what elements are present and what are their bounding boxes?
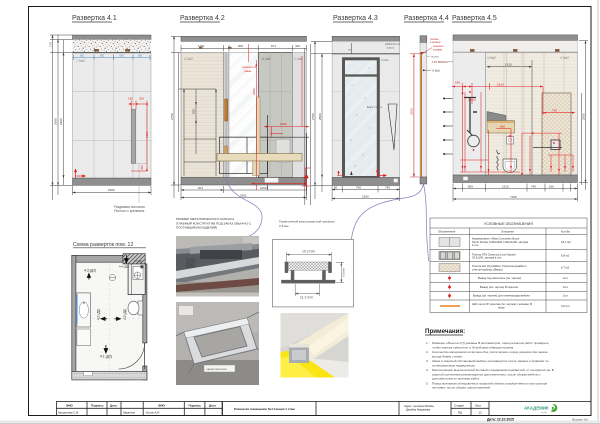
svg-text:2360: 2360: [108, 188, 115, 192]
svg-text:2750: 2750: [170, 113, 174, 120]
svg-text:Развертка 4.3: Развертка 4.3: [333, 15, 378, 22]
svg-text:600: 600: [120, 55, 125, 58]
svg-text:7195: 7195: [510, 195, 517, 199]
svg-text:1.4м2: 1.4м2: [294, 57, 303, 61]
svg-text:1510: 1510: [505, 63, 512, 67]
svg-text:900: 900: [238, 44, 243, 48]
svg-text:Заказчик: Заказчик: [123, 410, 136, 414]
svg-text:Формат А3: Формат А3: [572, 417, 588, 421]
svg-text:600: 600: [100, 55, 105, 58]
svg-text:4.5 (Д2): 4.5 (Д2): [123, 309, 127, 320]
svg-text:1510: 1510: [497, 83, 504, 87]
svg-text:560: 560: [138, 55, 143, 58]
svg-text:Герметичный влагозащитный проф: Герметичный влагозащитный профиль: [279, 220, 335, 224]
svg-text:Стадия: Стадия: [454, 404, 464, 408]
svg-text:610: 610: [549, 184, 554, 188]
svg-text:2500: 2500: [318, 113, 322, 120]
svg-text:Развертка 4.1: Развертка 4.1: [72, 15, 117, 22]
svg-text:450: 450: [140, 165, 144, 170]
svg-text:2250: 2250: [410, 108, 414, 115]
svg-text:на линии, после сборки, распол: на линии, после сборки, расположенной.: [432, 386, 491, 390]
svg-text:175: 175: [49, 42, 53, 47]
svg-text:нише: нише: [498, 307, 505, 310]
svg-text:Адрес: тропинка Москва,: Адрес: тропинка Москва,: [404, 404, 434, 408]
svg-text:90: 90: [334, 185, 338, 189]
svg-text:3.: 3.: [426, 359, 429, 363]
svg-text:Описание: Описание: [501, 230, 514, 234]
svg-text:ГЛУХ.: ГЛУХ.: [387, 46, 395, 50]
svg-text:Вывод (см. чертеж) для гигиена: Вывод (см. чертеж) для гигиенаграда мебе…: [473, 294, 530, 298]
svg-text:1шт: 1шт: [563, 294, 569, 298]
svg-text:дополнителем по монтажу работ.: дополнителем по монтажу работ.: [432, 377, 480, 381]
svg-text:140: 140: [455, 81, 460, 85]
svg-text:12: 12: [479, 411, 483, 415]
svg-text:6,7 м2: 6,7 м2: [561, 266, 570, 270]
svg-text:75: 75: [348, 48, 352, 52]
svg-text:Дата: Дата: [110, 404, 117, 408]
svg-text:601: 601: [198, 186, 203, 190]
svg-text:7.9м2: 7.9м2: [76, 59, 85, 63]
svg-text:каркас металлич.: каркас металлич.: [207, 368, 228, 371]
svg-text:0.6м2: 0.6м2: [432, 69, 440, 73]
svg-text:4.5м2: 4.5м2: [487, 56, 496, 60]
svg-text:1510: 1510: [502, 184, 509, 188]
svg-text:2680: 2680: [54, 118, 58, 125]
svg-text:3,5 м.п.: 3,5 м.п.: [561, 304, 571, 308]
svg-text:740: 740: [385, 185, 390, 189]
svg-text:560: 560: [500, 125, 505, 129]
svg-text:2750: 2750: [311, 113, 315, 120]
svg-text:4.2м2: 4.2м2: [184, 57, 193, 61]
svg-text:150: 150: [128, 97, 133, 101]
svg-text:РД: РД: [458, 411, 462, 415]
svg-text:Примечания:: Примечания:: [425, 328, 465, 335]
svg-text:740: 740: [552, 109, 557, 113]
svg-text:4.4 (Д2): 4.4 (Д2): [119, 265, 129, 269]
svg-text:чтобы монтаж смеситель и. В вы: чтобы монтаж смеситель и. В выбором обво…: [432, 345, 514, 349]
svg-text:2500: 2500: [59, 118, 63, 125]
svg-text:Котов А.И: Котов А.И: [146, 410, 159, 414]
svg-text:4.1 (Д2): 4.1 (Д2): [100, 355, 112, 359]
svg-text:420: 420: [295, 44, 300, 48]
svg-text:4.4 (Д): 4.4 (Д): [134, 259, 142, 263]
svg-text:Дата: Дата: [209, 404, 216, 408]
svg-text:Развертка 4.4: Развертка 4.4: [404, 15, 449, 22]
svg-text:2.: 2.: [426, 350, 429, 354]
svg-text:LED-лента IP, скрытая (см. чер: LED-лента IP, скрытая (см. чертеж) с ниш…: [472, 302, 532, 306]
svg-text:1.: 1.: [426, 341, 429, 345]
svg-text:16,1 м2: 16,1 м2: [561, 240, 571, 244]
svg-text:потенциальным подрядчиком.: потенциальным подрядчиком.: [432, 363, 476, 367]
svg-text:4.2 (Д2): 4.2 (Д2): [97, 309, 101, 320]
svg-text:871: 871: [271, 44, 276, 48]
svg-text:6,8 м2: 6,8 м2: [561, 254, 570, 258]
svg-text:в размер: в размер: [430, 41, 441, 44]
svg-text:11.2 mm: 11.2 mm: [300, 296, 313, 300]
svg-text:строй: строй: [541, 411, 548, 414]
svg-text:855: 855: [468, 184, 473, 188]
svg-text:6.5mm: 6.5mm: [342, 267, 346, 277]
svg-text:Бокс стекл.: Бокс стекл.: [367, 105, 382, 109]
svg-text:4.5м2: 4.5м2: [560, 56, 569, 60]
svg-text:полка: полка: [431, 55, 439, 59]
svg-text:Дерябка Академика: Дерябка Академика: [406, 408, 431, 412]
svg-text:Развертка помещения №4 Секция: Развертка помещения №4 Секция 1 этаж: [234, 407, 296, 411]
svg-text:1шт: 1шт: [563, 276, 569, 280]
svg-text:3361: 3361: [240, 193, 247, 197]
svg-text:1150: 1150: [145, 131, 149, 138]
svg-text:Развертка 4.2: Развертка 4.2: [180, 15, 225, 22]
svg-text:33,3х100, затирка в тон: 33,3х100, затирка в тон: [472, 256, 502, 260]
svg-text:ФИО: ФИО: [66, 404, 74, 408]
svg-text:Подпись: Подпись: [189, 404, 202, 408]
svg-text:4.: 4.: [426, 368, 429, 372]
svg-text:740: 740: [531, 184, 536, 188]
svg-text:1560: 1560: [362, 194, 369, 198]
svg-text:Развертка 4.5: Развертка 4.5: [452, 15, 497, 22]
svg-text:АКАДЕМИК: АКАДЕМИК: [524, 406, 549, 411]
svg-text:1400: 1400: [280, 122, 287, 126]
svg-text:Вывод под смеситель (см. черте: Вывод под смеситель (см. чертеж): [478, 276, 521, 280]
svg-text:в тон: в тон: [472, 244, 479, 247]
svg-text:в раме: в раме: [433, 48, 443, 52]
svg-text:1шт: 1шт: [563, 285, 569, 289]
svg-text:200: 200: [139, 97, 144, 101]
svg-text:учетом подбора, (Вверх): учетом подбора, (Вверх): [472, 267, 503, 271]
svg-text:Лист: Лист: [475, 404, 482, 408]
svg-text:раме: раме: [244, 69, 252, 73]
svg-text:Вывод (см. чертеж) В скрытом: Вывод (см. чертеж) В скрытом: [480, 285, 518, 289]
svg-text:500: 500: [192, 109, 196, 114]
svg-text:0.5 мм: 0.5 мм: [279, 224, 288, 228]
svg-text:Подпись: Подпись: [91, 404, 104, 408]
svg-text:УСЛОВНЫЕ ОБОЗНАЧЕНИЯ: УСЛОВНЫЕ ОБОЗНАЧЕНИЯ: [484, 222, 533, 226]
svg-text:1.90 ВЫРЕЗ.: 1.90 ВЫРЕЗ.: [432, 60, 449, 64]
svg-text:19.2 mm: 19.2 mm: [302, 250, 315, 254]
svg-text:Stone Smoke 1200х2400 и 600х12: Stone Smoke 1200х2400 и 600х1200, затирк…: [472, 240, 529, 244]
svg-text:5.: 5.: [426, 381, 429, 385]
svg-text:2x60: 2x60: [260, 186, 267, 190]
svg-text:2250: 2250: [252, 88, 256, 95]
svg-text:6.3м2: 6.3м2: [262, 57, 271, 61]
svg-text:3.6м2: 3.6м2: [381, 58, 389, 62]
svg-text:ФИО: ФИО: [158, 404, 166, 408]
svg-text:600: 600: [80, 55, 85, 58]
svg-text:Кол-Во: Кол-Во: [561, 230, 571, 234]
svg-text:всегда берём с ними.: всегда берём с ними.: [432, 354, 463, 358]
svg-text:4.3 (Д2): 4.3 (Д2): [84, 269, 96, 273]
svg-text:2500: 2500: [581, 113, 585, 120]
svg-text:Капралова С.В.: Капралова С.В.: [58, 410, 79, 414]
svg-text:ПОСТАВЩИКОМ ИЗДЕЛИЙ): ПОСТАВЩИКОМ ИЗДЕЛИЙ): [176, 226, 217, 230]
svg-text:Обозначение: Обозначение: [438, 230, 456, 234]
svg-text:Схема разверток пом. 12: Схема разверток пом. 12: [73, 242, 133, 248]
svg-text:Дата: 22.10.2025: Дата: 22.10.2025: [487, 417, 514, 421]
svg-text:740: 740: [356, 185, 361, 189]
svg-text:Filomuro с крепежом: Filomuro с крепежом: [114, 209, 144, 213]
